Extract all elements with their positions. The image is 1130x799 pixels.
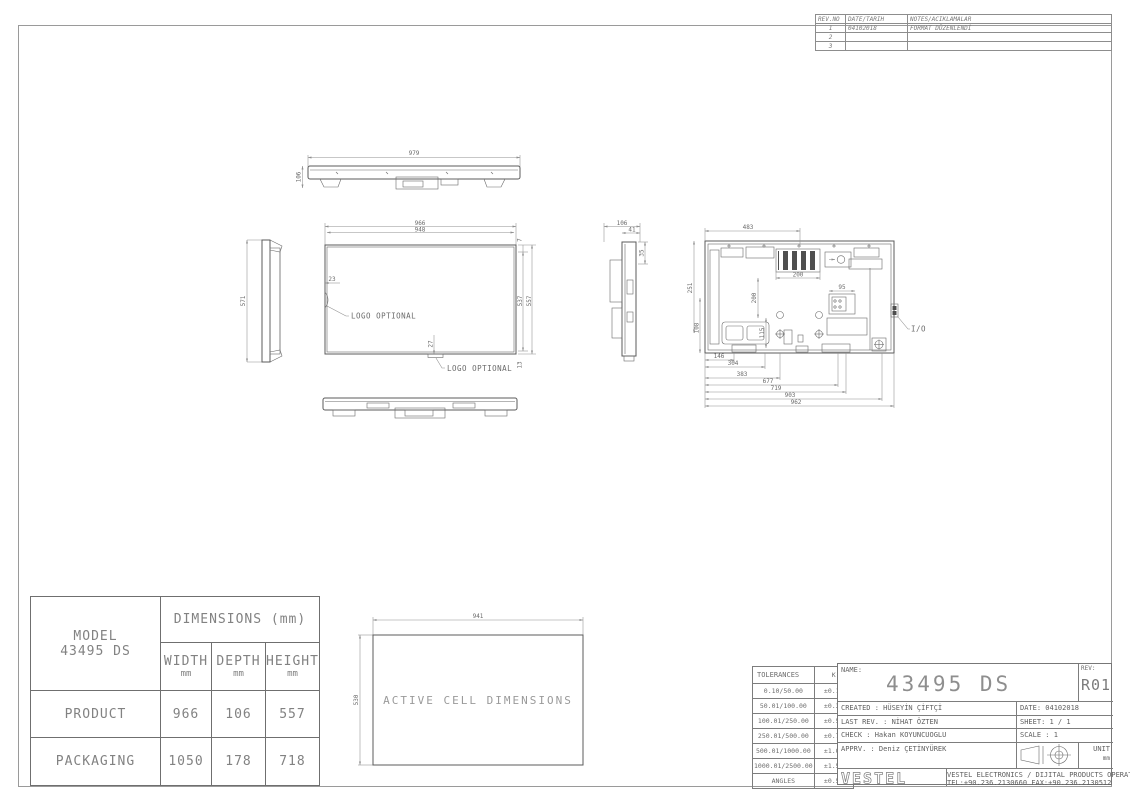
revision-header-row: REV.NO DATE/TARIH NOTES/ACIKLAMALAR <box>816 15 1112 24</box>
name-value: 43495 DS <box>886 672 1011 696</box>
right-side-view: 106 41 35 <box>592 220 650 370</box>
packaging-depth: 178 <box>212 738 266 786</box>
tol-range: ANGLES <box>753 774 815 789</box>
revision-row: 2 <box>816 33 1112 42</box>
name-cell: NAME: 43495 DS <box>838 664 1078 701</box>
left-side-dimensions: 571 <box>240 240 264 362</box>
dim-rear-vent: 200 <box>793 272 804 279</box>
depth-header: DEPTHmm <box>212 643 266 691</box>
product-row: PRODUCT 966 106 557 <box>31 691 320 738</box>
ac-inlet <box>825 252 851 267</box>
model-table: MODEL 43495 DS DIMENSIONS (mm) WIDTHmm D… <box>30 596 320 786</box>
dim-chain-3: 383 <box>737 371 748 378</box>
rev-date <box>846 33 908 42</box>
dim-rside-depth: 106 <box>617 220 628 227</box>
front-body <box>325 245 516 358</box>
rear-body <box>705 241 898 353</box>
vestel-logo-cell: VESTEL <box>838 768 946 787</box>
bottom-view <box>315 392 525 424</box>
name-label: NAME: <box>841 666 862 674</box>
vent-column <box>710 250 719 344</box>
packaging-label: PACKAGING <box>31 738 161 786</box>
io-label: I/O <box>911 325 926 334</box>
front-logo-left: 23 LOGO OPTIONAL <box>325 276 416 321</box>
dim-front-inner-width: 948 <box>415 227 426 234</box>
dim-chain-7: 962 <box>791 399 802 406</box>
vent-center <box>778 251 818 270</box>
projection-cell <box>1016 742 1078 768</box>
model-label: MODEL <box>73 629 117 644</box>
rev-date <box>846 42 908 51</box>
top-view: 979 106 <box>296 148 528 200</box>
rev-cell: REV: R01 <box>1078 664 1113 701</box>
width-header: WIDTHmm <box>161 643 212 691</box>
rev-label: REV: <box>1081 665 1095 672</box>
vestel-logo: VESTEL <box>838 769 944 787</box>
company-cell: VESTEL ELECTRONICS / DIJITAL PRODUCTS OP… <box>946 768 1113 787</box>
front-view: 966 948 7 537 557 13 23 LOGO O <box>310 220 545 385</box>
logo-optional-label-left: LOGO OPTIONAL <box>351 312 416 321</box>
front-dimensions-top: 966 948 <box>325 220 516 245</box>
rev-date-header: DATE/TARIH <box>846 15 908 24</box>
logo-optional-label-bottom: LOGO OPTIONAL <box>447 364 512 373</box>
dim-chain-4: 677 <box>763 378 774 385</box>
right-side-body <box>610 242 636 361</box>
rev-no: 2 <box>816 33 846 42</box>
rev-note: FORMAT DÜZENLENDİ <box>908 24 1112 33</box>
vesa-hole <box>816 312 823 319</box>
dim-logo-side: 23 <box>328 276 336 283</box>
revision-row: 1 04102018 FORMAT DÜZENLENDİ <box>816 24 1112 33</box>
dim-front-bottom-bezel: 13 <box>517 361 524 369</box>
height-header: HEIGHTmm <box>266 643 320 691</box>
last-rev-cell: LAST REV. : NİHAT ÖZTEN <box>838 715 1016 728</box>
dim-chain-2: 304 <box>728 360 739 367</box>
rev-value: R01 <box>1079 676 1113 694</box>
dim-rside-side: 35 <box>639 249 646 257</box>
vent-strip <box>367 403 389 408</box>
active-cell-view: 941 530 ACTIVE CELL DIMENSIONS <box>348 606 598 786</box>
bottom-view-body <box>323 398 517 418</box>
rev-no: 1 <box>816 24 846 33</box>
vent-strip <box>822 344 850 352</box>
company-line2: TEL:+90.236.2130660 FAX:+90.236.2130512 <box>947 779 1111 787</box>
left-side-body <box>262 240 282 362</box>
dim-cell-width: 941 <box>473 613 484 620</box>
tol-range: 100.01/250.00 <box>753 714 815 729</box>
check-cell: CHECK : Hakan KOYUNCUOGLU <box>838 728 1016 742</box>
company-line1: VESTEL ELECTRONICS / DIJITAL PRODUCTS OP… <box>947 771 1130 779</box>
active-cell-label: ACTIVE CELL DIMENSIONS <box>383 694 573 707</box>
product-height: 557 <box>266 691 320 738</box>
active-cell-dimensions: 941 530 <box>353 613 583 765</box>
top-view-dimensions: 979 106 <box>296 150 521 188</box>
model-value: 43495 DS <box>60 644 131 659</box>
vent-strip <box>732 345 756 352</box>
dim-rear-left-upper: 251 <box>687 282 694 293</box>
vesa-hole <box>777 312 784 319</box>
dim-chain-5: 719 <box>771 385 782 392</box>
tol-range: 1000.01/2500.00 <box>753 759 815 774</box>
dim-chain-1: 146 <box>714 353 725 360</box>
rev-date: 04102018 <box>846 24 908 33</box>
model-cell: MODEL 43495 DS <box>31 597 161 691</box>
control-joystick <box>796 346 808 352</box>
dim-side-height: 571 <box>240 295 247 306</box>
rev-notes-header: NOTES/ACIKLAMALAR <box>908 15 1112 24</box>
logo-bump-bottom <box>428 354 443 358</box>
tol-range: 500.01/1000.00 <box>753 744 815 759</box>
apprv-cell: APPRV. : Deniz ÇETİNYÜREK <box>838 742 1016 768</box>
tol-range: 250.01/500.00 <box>753 729 815 744</box>
dim-front-outer-height: 557 <box>526 295 533 306</box>
vent-strip <box>746 247 774 258</box>
left-side-view: 571 <box>238 230 290 370</box>
dim-chain-6: 903 <box>785 392 796 399</box>
dim-rear-vesa-v: 200 <box>751 292 758 303</box>
rev-note <box>908 42 1112 51</box>
dim-top-depth: 106 <box>296 171 303 182</box>
dim-rear-conn: 95 <box>838 284 846 291</box>
created-cell: CREATED : HÜSEYİN ÇİFTÇİ <box>838 701 1016 715</box>
rev-note <box>908 33 1112 42</box>
dim-rside-top: 41 <box>628 227 636 234</box>
dim-rear-top: 483 <box>743 224 754 231</box>
unit-cell: UNIT mm <box>1078 742 1113 768</box>
io-recess <box>827 318 867 335</box>
dim-rear-left-lower: 108 <box>694 322 701 333</box>
revision-row: 3 <box>816 42 1112 51</box>
dim-top-width: 979 <box>409 150 420 157</box>
sheet-cell: SHEET: 1 / 1 <box>1016 715 1113 728</box>
front-dimensions-right: 7 537 557 13 <box>517 238 537 369</box>
unit-value: mm <box>1103 755 1110 762</box>
dim-front-inner-height: 537 <box>517 295 524 306</box>
scale-cell: SCALE : 1 <box>1016 728 1113 742</box>
unit-label: UNIT <box>1093 745 1110 753</box>
packaging-height: 718 <box>266 738 320 786</box>
rev-no-header: REV.NO <box>816 15 846 24</box>
vent-strip <box>453 403 475 408</box>
product-label: PRODUCT <box>31 691 161 738</box>
date-cell: DATE: 04102018 <box>1016 701 1113 715</box>
projection-symbol-icon <box>1017 743 1077 767</box>
packaging-width: 1050 <box>161 738 212 786</box>
dim-rear-mid: 115 <box>759 327 766 338</box>
drawing-sheet: REV.NO DATE/TARIH NOTES/ACIKLAMALAR 1 04… <box>0 0 1130 799</box>
dim-cell-height: 530 <box>353 694 360 705</box>
rev-no: 3 <box>816 42 846 51</box>
revision-table: REV.NO DATE/TARIH NOTES/ACIKLAMALAR 1 04… <box>815 14 1112 51</box>
tol-range: 50.01/100.00 <box>753 699 815 714</box>
top-view-body <box>308 166 520 189</box>
tol-range: 0.10/50.00 <box>753 684 815 699</box>
title-block: NAME: 43495 DS REV: R01 CREATED : HÜSEYİ… <box>837 663 1112 785</box>
packaging-row: PACKAGING 1050 178 718 <box>31 738 320 786</box>
dim-front-top-bezel: 7 <box>517 238 524 242</box>
dim-logo-bottom: 27 <box>428 340 435 348</box>
tolerances-header: TOLERANCES <box>753 667 815 684</box>
vent-strip <box>849 259 882 269</box>
svg-text:VESTEL: VESTEL <box>841 769 907 787</box>
product-depth: 106 <box>212 691 266 738</box>
dimensions-header: DIMENSIONS (mm) <box>161 597 320 643</box>
product-width: 966 <box>161 691 212 738</box>
rear-view: 483 200 95 200 115 251 108 I/O <box>684 218 929 418</box>
